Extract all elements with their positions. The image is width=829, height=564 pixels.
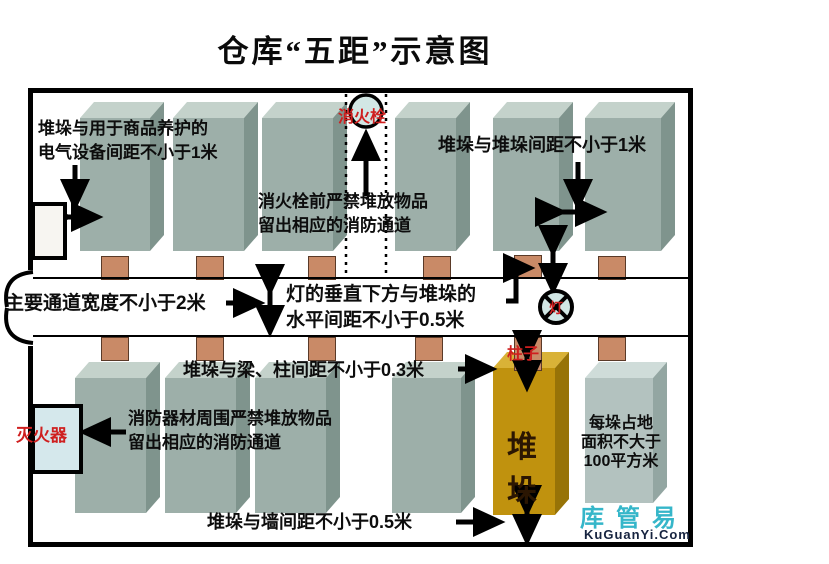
hydrant-label: 消火栓 [338,103,386,127]
annotation-stack-gap: 堆垛与堆垛间距不小于1米 [438,133,646,157]
electrical-equipment-box [31,202,67,260]
annotation-wall-gap: 堆垛与墙间距不小于0.5米 [207,510,412,534]
lamp-connector [506,268,526,301]
annotation-fire-equipment: 消防器材周围严禁堆放物品 留出相应的消防通道 [128,407,332,455]
annotation-main-aisle: 主要通道宽度不小于2米 [5,292,206,316]
column-label: 柱子 [507,340,539,364]
warehouse-five-distance-diagram: 仓库“五距”示意图 [0,0,829,564]
annotation-area-limit: 每垛占地 面积不大于 100平方米 [576,414,666,471]
annotation-electrical: 堆垛与用于商品养护的 电气设备间距不小于1米 [38,117,217,165]
annotation-hydrant-front: 消火栓前严禁堆放物品 留出相应的消防通道 [258,190,428,238]
watermark-url: KuGuanYi.Com [584,527,691,542]
lamp-label: 灯 [549,298,563,318]
annotation-beam-column: 堆垛与梁、柱间距不小于0.3米 [183,358,424,382]
pile-label: 堆垛 [493,422,555,510]
annotation-lamp-distance: 灯的垂直下方与堆垛的 水平间距不小于0.5米 [286,282,476,334]
extinguisher-label: 灭火器 [16,421,67,446]
